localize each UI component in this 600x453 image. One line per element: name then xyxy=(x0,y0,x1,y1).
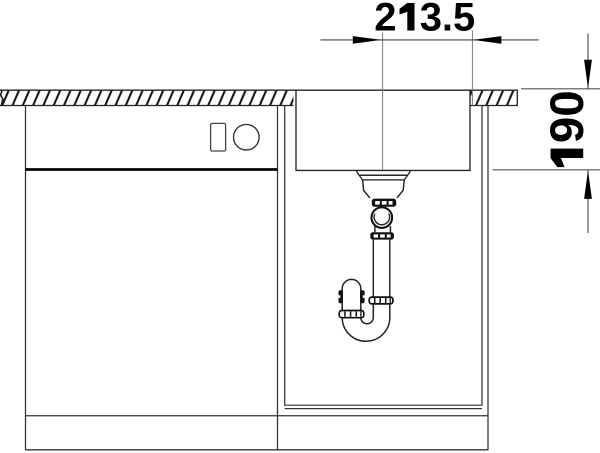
svg-text:90: 90 xyxy=(541,90,594,143)
svg-text:2: 2 xyxy=(374,0,396,40)
svg-text:3.5: 3.5 xyxy=(420,0,476,40)
